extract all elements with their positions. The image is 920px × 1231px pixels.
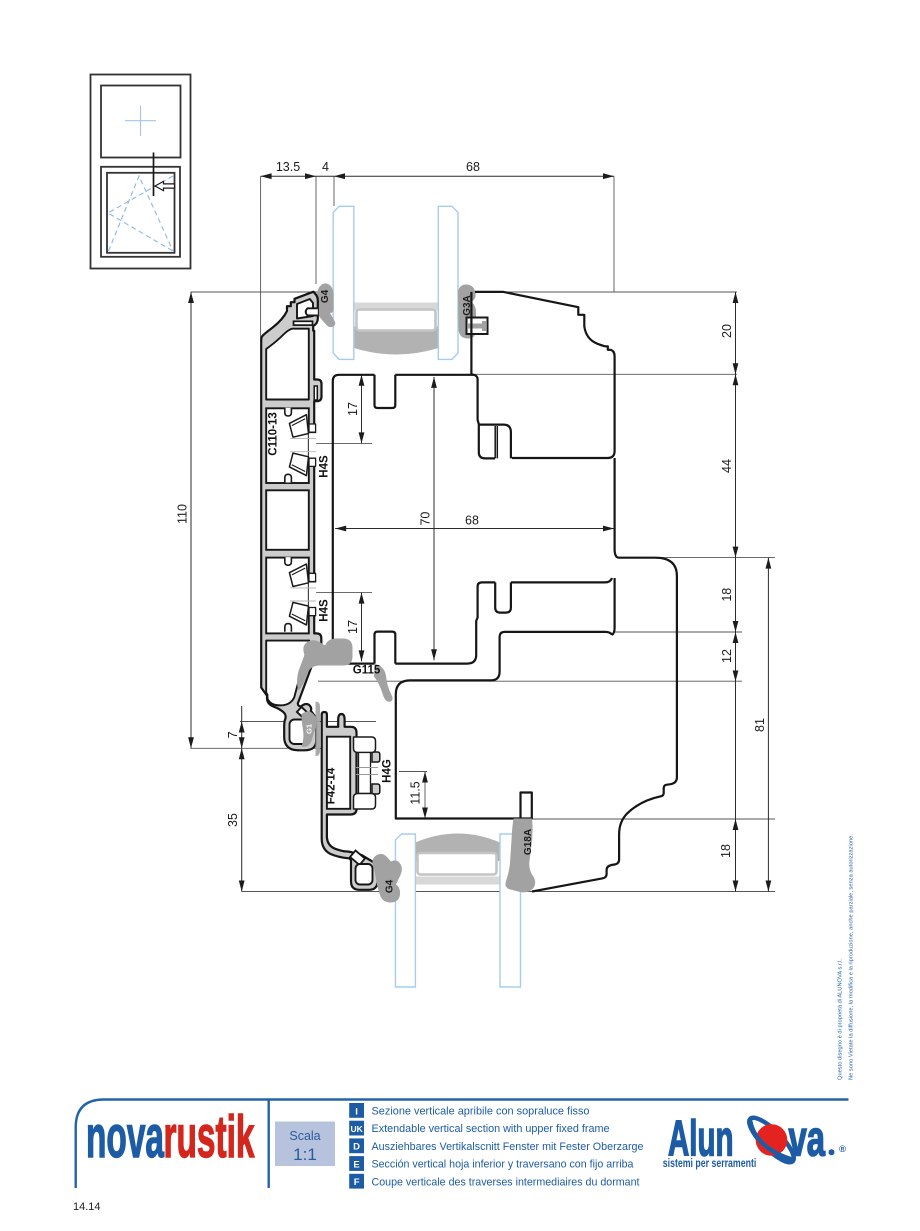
svg-text:G3A: G3A: [462, 295, 473, 316]
svg-text:35: 35: [226, 813, 240, 827]
svg-text:G18A: G18A: [523, 829, 534, 855]
svg-text:20: 20: [720, 324, 734, 338]
svg-text:13.5: 13.5: [276, 160, 300, 174]
svg-text:I: I: [355, 1106, 358, 1117]
svg-text:G115: G115: [353, 665, 381, 677]
svg-text:Sección vertical hoja inferior: Sección vertical hoja inferior y travers…: [372, 1159, 635, 1171]
svg-text:Extendable vertical section wi: Extendable vertical section with upper f…: [372, 1123, 610, 1135]
svg-text:1:1: 1:1: [293, 1145, 317, 1164]
svg-text:F42-14: F42-14: [326, 767, 338, 804]
svg-text:®: ®: [839, 1144, 846, 1155]
svg-text:70: 70: [418, 512, 432, 526]
svg-text:E: E: [353, 1159, 359, 1170]
svg-text:sistemi per serramenti: sistemi per serramenti: [663, 1156, 757, 1170]
svg-text:G1: G1: [305, 724, 314, 734]
svg-text:H4G: H4G: [382, 759, 394, 783]
svg-text:Ne sono Vietate la diffusione,: Ne sono Vietate la diffusione, la modifi…: [849, 834, 855, 1080]
svg-text:G4: G4: [320, 289, 331, 303]
svg-text:F: F: [354, 1177, 360, 1188]
svg-text:17: 17: [346, 402, 360, 416]
svg-text:UK: UK: [350, 1124, 363, 1134]
svg-text:Scala: Scala: [289, 1129, 320, 1143]
svg-text:18: 18: [719, 844, 733, 858]
svg-text:D: D: [353, 1142, 360, 1153]
svg-text:7: 7: [226, 731, 240, 738]
svg-text:44: 44: [720, 459, 734, 473]
svg-text:rustik: rustik: [164, 1104, 255, 1170]
svg-text:H4S: H4S: [319, 455, 331, 478]
svg-text:Questo disegno è di proprietà: Questo disegno è di proprietà di ALUNOVA…: [838, 959, 844, 1080]
svg-text:18: 18: [720, 588, 734, 602]
svg-text:C110-13: C110-13: [268, 412, 280, 455]
svg-text:14.14: 14.14: [73, 1201, 101, 1213]
svg-text:4: 4: [322, 160, 329, 174]
svg-text:17: 17: [346, 620, 360, 634]
svg-text:G4: G4: [385, 879, 396, 893]
svg-text:Coupe verticale des traverses: Coupe verticale des traverses intermedia…: [372, 1176, 640, 1188]
svg-text:nova: nova: [86, 1104, 165, 1170]
svg-text:Ausziehbares Vertikalscnitt Fe: Ausziehbares Vertikalscnitt Fenster mit …: [372, 1141, 644, 1153]
svg-text:81: 81: [753, 718, 767, 732]
svg-text:110: 110: [176, 504, 190, 524]
svg-text:12: 12: [720, 649, 734, 663]
svg-text:68: 68: [465, 514, 479, 528]
svg-text:11.5: 11.5: [409, 781, 423, 804]
svg-text:Sezione verticale apribile con: Sezione verticale apribile con sopraluce…: [372, 1106, 590, 1118]
svg-text:H4S: H4S: [319, 599, 331, 622]
svg-text:68: 68: [466, 160, 480, 174]
